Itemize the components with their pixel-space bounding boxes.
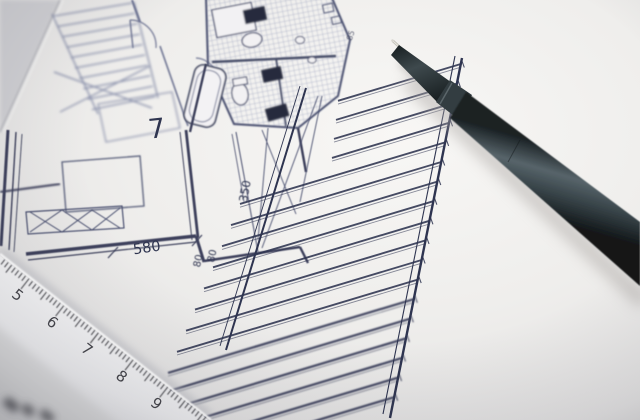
photo-architectural-plan: 7 580 350 80 80 85 (0, 0, 640, 420)
photo-canvas: 7 580 350 80 80 85 (0, 0, 640, 420)
vignette-overlay (0, 0, 640, 420)
